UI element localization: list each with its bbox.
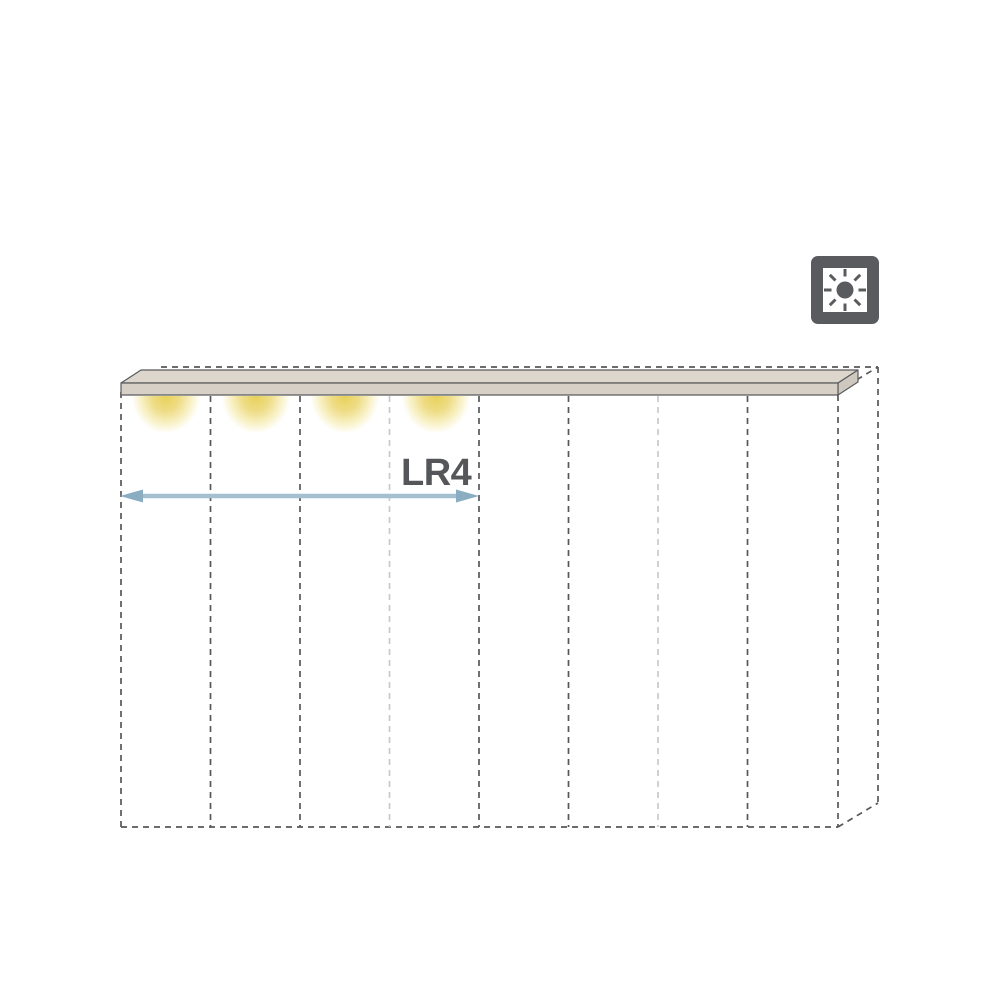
interior-light-icon[interactable] — [810, 255, 880, 325]
light-strip-panel[interactable] — [121, 370, 858, 395]
sun-in-frame-icon — [810, 255, 880, 325]
light-strip-front-face — [121, 383, 838, 395]
section-dividers — [211, 396, 748, 827]
dimension-arrow-left-head — [120, 490, 143, 503]
scene-canvas — [0, 0, 1001, 1001]
wardrobe-outline — [121, 367, 878, 827]
dimension-label: LR4 — [401, 454, 471, 492]
wardrobe-lighting-diagram: LR4 — [0, 0, 1001, 1001]
outline-bottom-right-depth-edge — [838, 803, 878, 827]
light-strip-top-face — [121, 370, 858, 383]
